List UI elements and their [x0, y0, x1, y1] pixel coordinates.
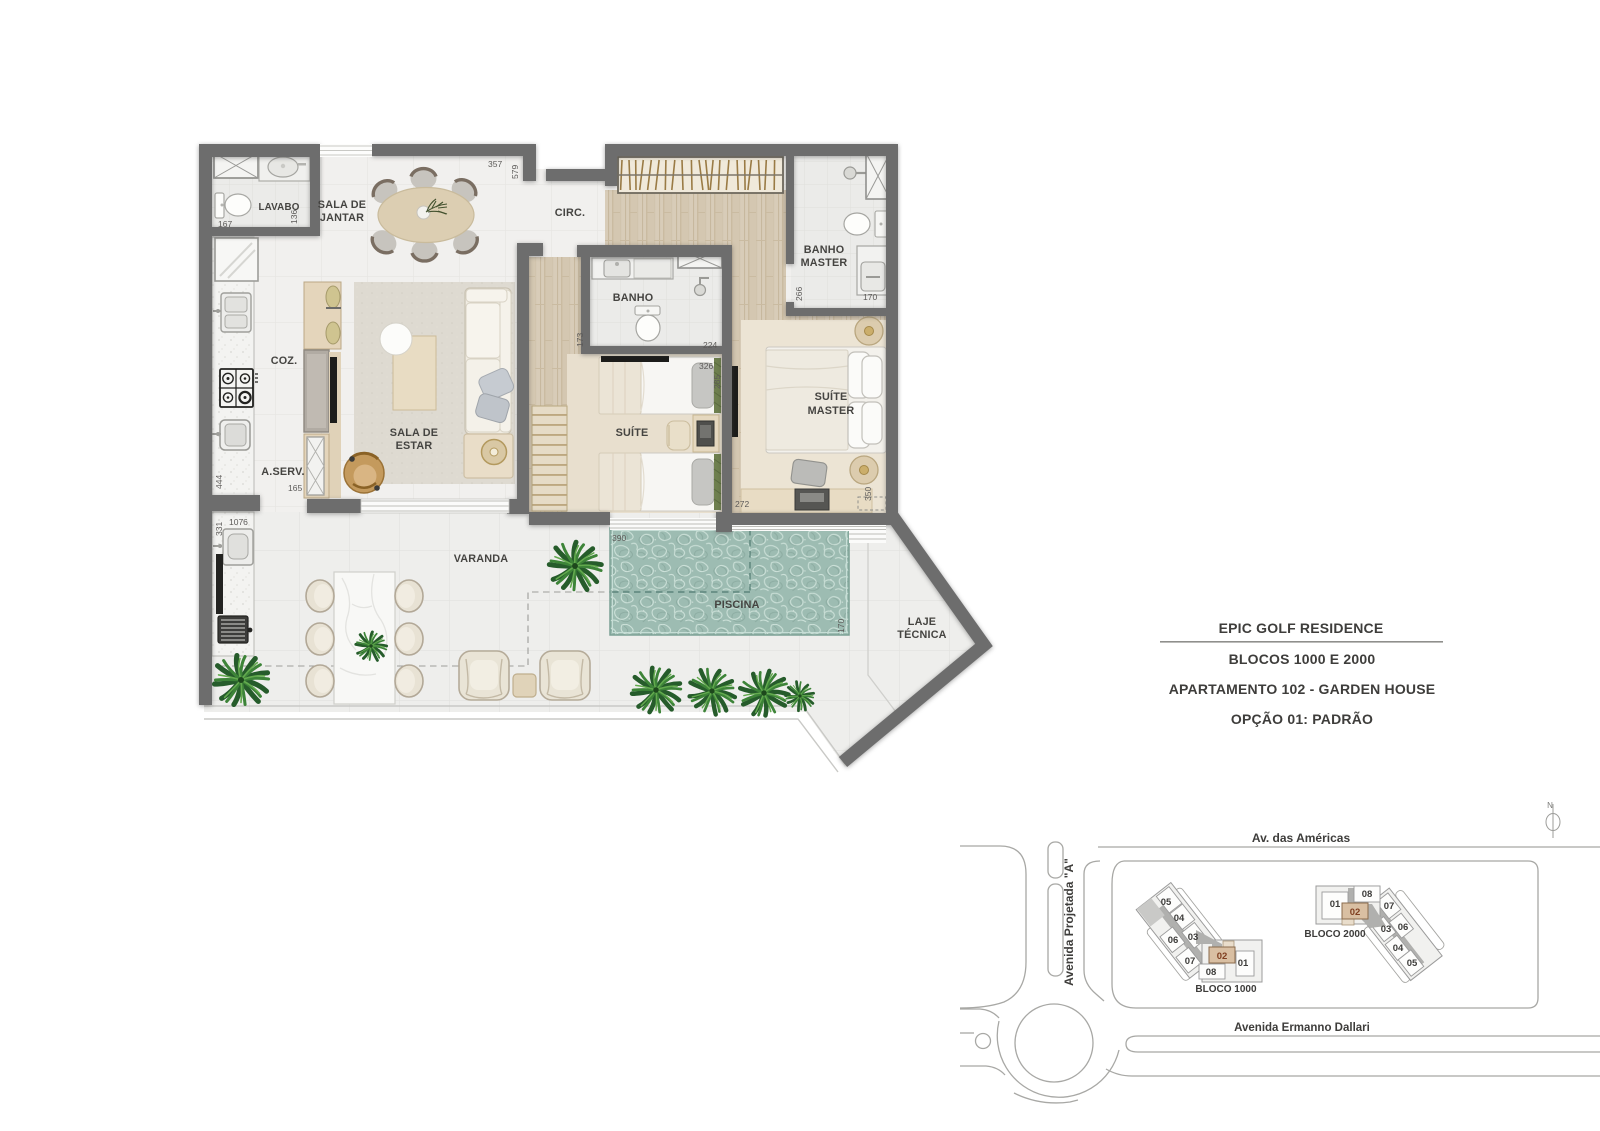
- svg-text:06: 06: [1398, 922, 1409, 933]
- svg-text:EPIC GOLF RESIDENCE: EPIC GOLF RESIDENCE: [1219, 620, 1384, 636]
- svg-text:03: 03: [1381, 924, 1392, 935]
- svg-text:MASTER: MASTER: [801, 257, 848, 269]
- svg-text:579: 579: [510, 165, 520, 179]
- svg-text:224: 224: [703, 340, 717, 350]
- svg-text:07: 07: [1384, 901, 1395, 912]
- svg-text:266: 266: [794, 287, 804, 301]
- svg-text:170: 170: [863, 292, 877, 302]
- svg-text:SALA DE: SALA DE: [390, 427, 438, 439]
- svg-text:01: 01: [1238, 958, 1249, 969]
- svg-text:444: 444: [214, 475, 224, 489]
- svg-text:CIRC.: CIRC.: [555, 207, 585, 219]
- svg-text:326: 326: [699, 361, 713, 371]
- svg-text:331: 331: [214, 522, 224, 536]
- svg-text:272: 272: [735, 499, 749, 509]
- svg-text:04: 04: [1393, 943, 1404, 954]
- svg-text:357: 357: [488, 159, 502, 169]
- svg-text:BANHO: BANHO: [804, 244, 845, 256]
- svg-text:BLOCOS 1000 E 2000: BLOCOS 1000 E 2000: [1229, 651, 1376, 667]
- svg-text:Av. das Américas: Av. das Américas: [1252, 831, 1351, 845]
- svg-text:JANTAR: JANTAR: [320, 212, 364, 224]
- svg-text:170: 170: [836, 619, 846, 633]
- svg-text:136: 136: [289, 210, 299, 224]
- svg-text:02: 02: [1217, 951, 1228, 962]
- svg-text:TÉCNICA: TÉCNICA: [897, 628, 946, 641]
- svg-text:ESTAR: ESTAR: [396, 440, 433, 452]
- svg-text:02: 02: [1350, 907, 1361, 918]
- svg-text:SUÍTE: SUÍTE: [815, 390, 848, 403]
- svg-text:05: 05: [1161, 897, 1172, 908]
- svg-text:07: 07: [1185, 956, 1196, 967]
- svg-text:390: 390: [612, 533, 626, 543]
- svg-text:N: N: [1547, 801, 1553, 810]
- svg-text:OPÇÃO 01: PADRÃO: OPÇÃO 01: PADRÃO: [1231, 710, 1373, 727]
- svg-text:173: 173: [575, 333, 585, 347]
- svg-text:350: 350: [863, 487, 873, 501]
- svg-text:08: 08: [1362, 889, 1373, 900]
- svg-text:SALA DE: SALA DE: [318, 199, 366, 211]
- svg-text:08: 08: [1206, 967, 1217, 978]
- svg-text:01: 01: [1330, 899, 1341, 910]
- svg-text:167: 167: [218, 219, 232, 229]
- svg-text:APARTAMENTO 102 - GARDEN HOUSE: APARTAMENTO 102 - GARDEN HOUSE: [1169, 681, 1436, 697]
- svg-text:03: 03: [1188, 932, 1199, 943]
- svg-text:BLOCO 1000: BLOCO 1000: [1195, 984, 1257, 995]
- svg-text:PISCINA: PISCINA: [714, 599, 759, 611]
- svg-text:06: 06: [1168, 935, 1179, 946]
- svg-text:SUÍTE: SUÍTE: [616, 426, 649, 439]
- svg-text:MASTER: MASTER: [808, 405, 855, 417]
- svg-text:05: 05: [1407, 958, 1418, 969]
- svg-text:LAJE: LAJE: [908, 616, 936, 628]
- svg-text:1076: 1076: [229, 517, 248, 527]
- svg-text:Avenida Ermanno Dallari: Avenida Ermanno Dallari: [1234, 1022, 1370, 1034]
- svg-text:COZ.: COZ.: [271, 355, 298, 367]
- svg-text:Avenida Projetada "A": Avenida Projetada "A": [1062, 858, 1076, 986]
- svg-text:165: 165: [288, 483, 302, 493]
- svg-text:BANHO: BANHO: [613, 292, 654, 304]
- svg-text:04: 04: [1174, 913, 1185, 924]
- svg-text:BLOCO 2000: BLOCO 2000: [1304, 929, 1366, 940]
- svg-text:285: 285: [712, 375, 722, 389]
- svg-text:A.SERV.: A.SERV.: [261, 466, 304, 478]
- svg-text:VARANDA: VARANDA: [454, 553, 509, 565]
